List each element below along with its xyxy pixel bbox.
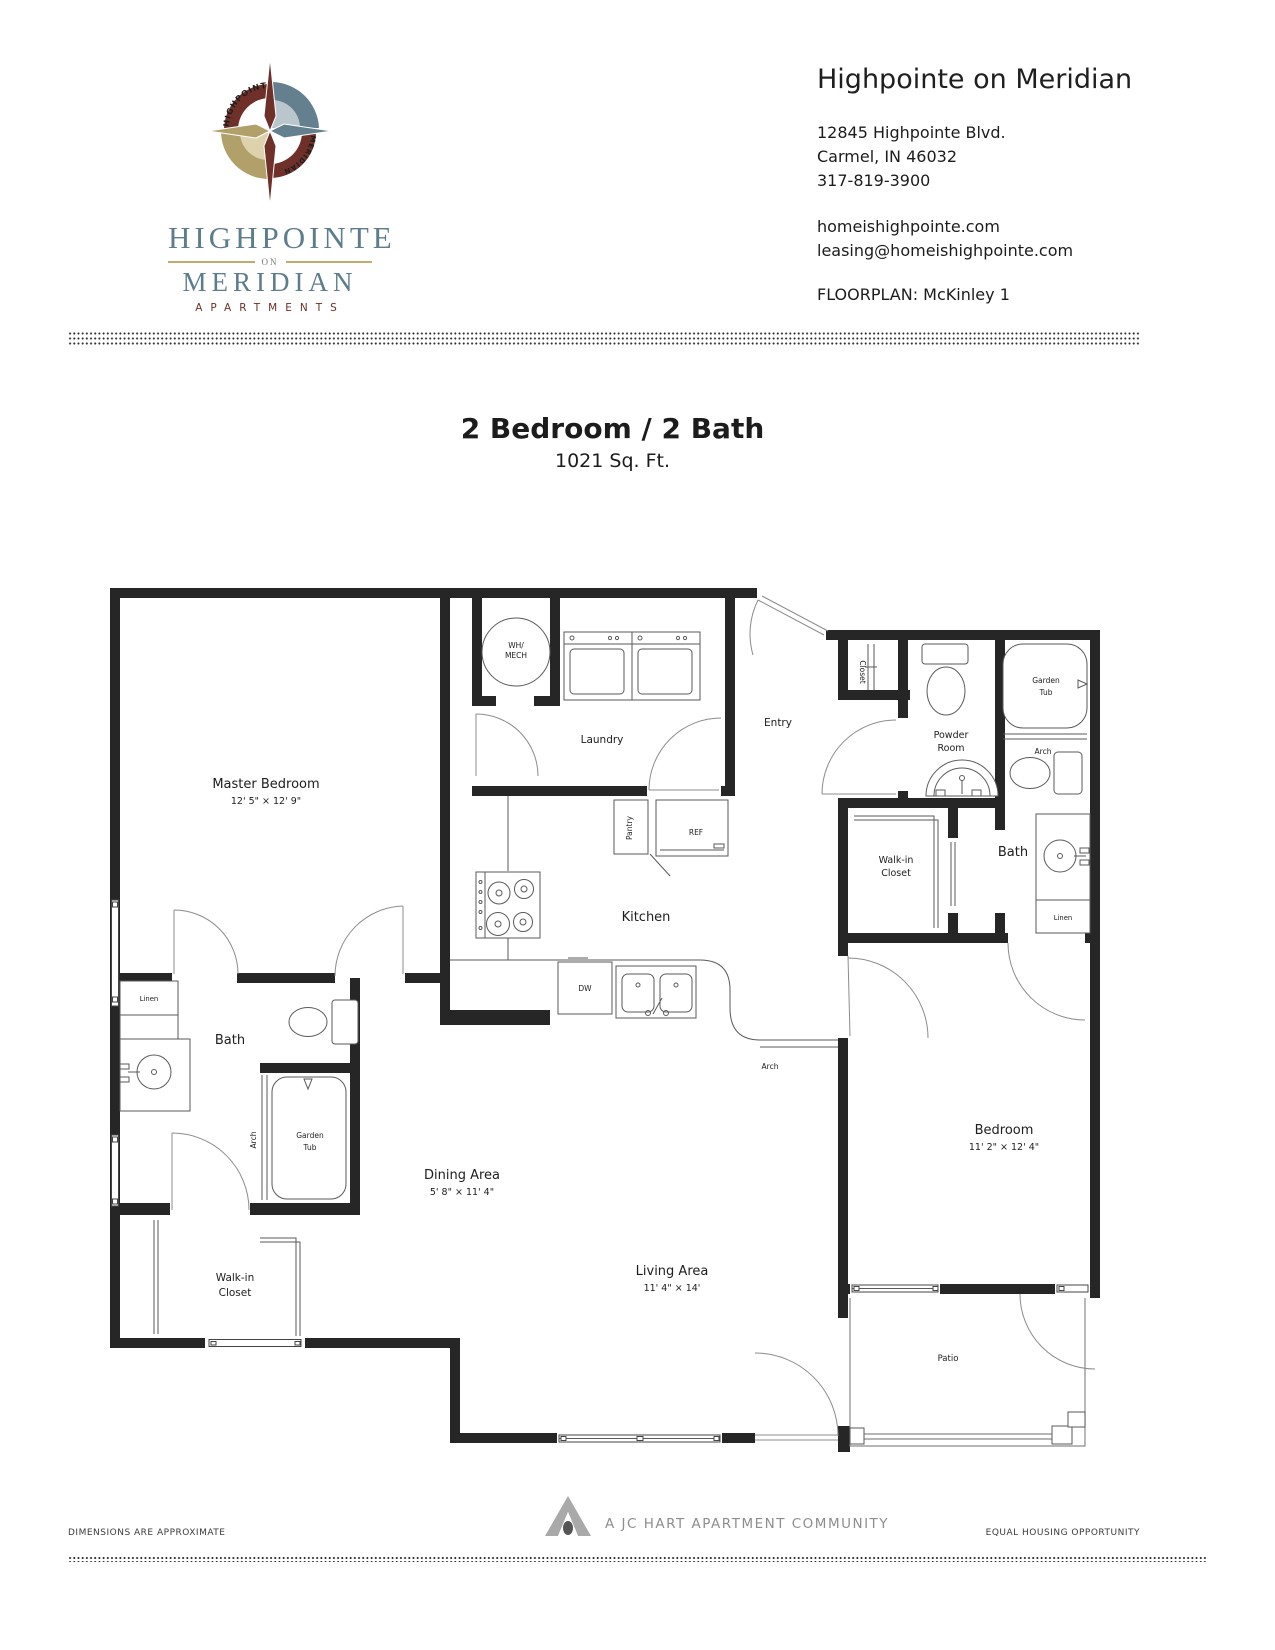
footer-community-text: A JC HART APARTMENT COMMUNITY <box>605 1516 889 1536</box>
address-line1: 12845 Highpointe Blvd. <box>817 121 1217 145</box>
patio-outline <box>850 1298 1085 1446</box>
wordmark-line3: APARTMENTS <box>168 302 372 314</box>
room-label-walkin-left-2: Closet <box>219 1287 252 1299</box>
label-linen-right: Linen <box>1054 914 1072 922</box>
bath-left-toilet <box>289 1000 358 1044</box>
phone: 317-819-3900 <box>817 169 1217 193</box>
compass-star-west <box>208 124 270 138</box>
page-title: 2 Bedroom / 2 Bath <box>0 412 1225 445</box>
bath-left-vanity <box>120 1039 190 1111</box>
room-label-walkin-left-1: Walk-in <box>216 1272 255 1284</box>
fixture-label-wh-2: MECH <box>505 651 527 660</box>
jchart-house-icon <box>545 1496 591 1536</box>
footer-equal-housing: EQUAL HOUSING OPPORTUNITY <box>986 1528 1140 1538</box>
compass-star-east <box>270 124 332 138</box>
room-label-bath-right: Bath <box>998 845 1028 860</box>
label-arch-right: Arch <box>1035 747 1052 756</box>
footer-community-brand: A JC HART APARTMENT COMMUNITY <box>545 1496 889 1536</box>
door-wh-mech <box>476 714 538 776</box>
room-label-living: Living Area <box>636 1264 709 1279</box>
room-label-walkin-right-2: Closet <box>881 868 911 879</box>
stove <box>476 872 540 938</box>
header-dotted-divider <box>68 331 1140 346</box>
room-dims-living: 11' 4" × 14' <box>644 1283 701 1294</box>
room-dims-bedroom: 11' 2" × 12' 4" <box>969 1142 1039 1153</box>
room-label-powder-1: Powder <box>934 730 969 741</box>
room-label-dining: Dining Area <box>424 1168 500 1183</box>
door-powder-room <box>822 720 896 794</box>
powder-toilet <box>922 644 968 715</box>
square-footage: 1021 Sq. Ft. <box>0 450 1225 472</box>
fixture-label-pantry: Pantry <box>625 815 634 840</box>
plan-title-block: 2 Bedroom / 2 Bath 1021 Sq. Ft. <box>0 412 1225 472</box>
address-line2: Carmel, IN 46032 <box>817 145 1217 169</box>
wordmark: HIGHPOINTE ON MERIDIAN APARTMENTS <box>168 222 372 314</box>
wordmark-line1: HIGHPOINTE <box>168 222 372 255</box>
room-label-entry: Entry <box>764 717 792 729</box>
website: homeishighpointe.com <box>817 215 1217 239</box>
door-bath-right <box>1008 943 1085 1020</box>
linen-left-cabinet <box>120 981 178 1039</box>
fixture-label-garden-tub-right-1: Garden <box>1032 676 1060 685</box>
door-bath-left <box>172 1133 249 1210</box>
wordmark-rule-right <box>286 261 373 263</box>
door-walkin-right <box>951 842 955 906</box>
fixture-label-wh-1: WH/ <box>508 641 524 650</box>
washer-dryer <box>564 632 700 700</box>
kitchen-sink <box>616 966 696 1018</box>
property-name: Highpointe on Meridian <box>817 64 1217 95</box>
door-front-entry <box>750 596 828 655</box>
room-label-bath-left: Bath <box>215 1033 245 1048</box>
label-arch-left: Arch <box>249 1131 258 1148</box>
door-bedroom <box>848 956 928 1038</box>
fixture-label-garden-tub-left-2: Tub <box>303 1143 317 1152</box>
bath-right-toilet <box>1010 752 1082 794</box>
room-dims-dining: 5' 8" × 11' 4" <box>430 1187 494 1198</box>
wordmark-line2: MERIDIAN <box>168 268 372 296</box>
compass-star-north <box>264 58 276 131</box>
wordmark-on-row: ON <box>168 257 372 267</box>
label-linen-left: Linen <box>140 995 158 1003</box>
window-master-left-1 <box>112 900 119 1006</box>
window-master-left-2 <box>112 1135 119 1206</box>
room-label-bedroom: Bedroom <box>975 1123 1034 1138</box>
footer-dotted-divider <box>68 1556 1208 1562</box>
room-dims-master-bedroom: 12' 5" × 12' 9" <box>231 796 301 807</box>
fixture-label-ref: REF <box>689 828 703 837</box>
window-living <box>559 1435 720 1442</box>
room-label-master-bedroom: Master Bedroom <box>212 777 319 792</box>
floorplan-name: FLOORPLAN: McKinley 1 <box>817 285 1217 304</box>
compass-star-south <box>264 131 276 206</box>
door-master-1 <box>174 910 238 974</box>
fixture-label-dw: DW <box>578 984 592 993</box>
wordmark-rule-left <box>168 261 255 263</box>
window-bedroom-2 <box>1057 1285 1088 1292</box>
bath-right-vanity <box>1036 814 1090 908</box>
room-label-laundry: Laundry <box>581 734 624 746</box>
door-patio-bedroom <box>1020 1294 1095 1369</box>
wordmark-on: ON <box>262 257 279 267</box>
fixture-label-garden-tub-right-2: Tub <box>1039 688 1053 697</box>
powder-sink <box>926 760 998 796</box>
room-label-powder-2: Room <box>937 743 964 754</box>
label-arch-center: Arch <box>762 1062 779 1071</box>
fixture-label-garden-tub-left-1: Garden <box>296 1131 324 1140</box>
property-logo: HIGHPOINTE MERIDIAN HIGHPOINTE ON MERIDI… <box>168 58 372 314</box>
compass-icon: HIGHPOINTE MERIDIAN <box>200 58 340 208</box>
door-master-2 <box>335 906 403 976</box>
email: leasing@homeishighpointe.com <box>817 239 1217 263</box>
floorplan-flyer-page: HIGHPOINTE MERIDIAN HIGHPOINTE ON MERIDI… <box>0 0 1275 1650</box>
footer-dimensions-note: DIMENSIONS ARE APPROXIMATE <box>68 1528 225 1538</box>
floorplan-drawing: Master Bedroom 12' 5" × 12' 9" Laundry W… <box>110 588 1100 1468</box>
door-laundry <box>649 718 721 790</box>
door-patio-living <box>755 1353 838 1440</box>
room-label-kitchen: Kitchen <box>622 910 671 925</box>
contact-block: Highpointe on Meridian 12845 Highpointe … <box>817 64 1217 304</box>
room-label-patio: Patio <box>938 1354 959 1364</box>
exterior-walls <box>110 588 1100 1452</box>
room-label-entry-closet: Closet <box>858 660 867 683</box>
room-label-walkin-right-1: Walk-in <box>879 855 914 866</box>
window-walkin-left <box>209 1340 301 1347</box>
window-bedroom-1 <box>852 1285 938 1292</box>
